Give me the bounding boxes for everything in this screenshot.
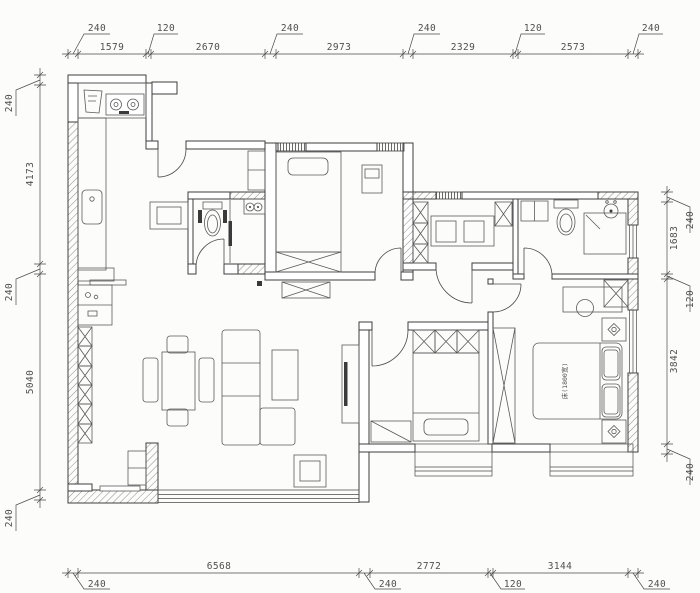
bedroom3-cabinet-symbol — [371, 421, 411, 442]
entry-door — [158, 149, 186, 177]
vanity-cabinet-symbol — [604, 280, 628, 307]
living-dining-area — [78, 285, 359, 487]
dim-top-2: 120 — [157, 23, 175, 34]
bedroom2-door — [375, 248, 401, 274]
dish-rack-symbol — [84, 90, 102, 113]
dim-top-4: 240 — [281, 23, 299, 34]
dim-top-0: 240 — [88, 23, 106, 34]
shower-2-symbol — [584, 213, 626, 254]
dim-bottom-5: 3144 — [548, 561, 572, 572]
dim-top-1: 1579 — [100, 42, 124, 53]
master-door — [493, 284, 521, 312]
dim-chain-bottom: 240 6568 240 2772 120 3144 240 — [62, 561, 670, 590]
shoe-cabinet-symbol — [248, 151, 265, 190]
study-area — [413, 202, 512, 263]
laundry-cabinet-symbol — [78, 285, 112, 325]
washstand-basin — [157, 207, 181, 224]
bathroom-2-area — [521, 200, 626, 254]
dim-left-0: 240 — [4, 94, 15, 112]
tv-symbol — [344, 362, 348, 406]
dim-left-2: 240 — [4, 283, 15, 301]
dim-right-1: 1683 — [669, 226, 680, 250]
bath2-east-window — [628, 225, 638, 258]
living-south-window — [158, 490, 359, 503]
study-door — [436, 267, 472, 303]
dim-top-6: 240 — [418, 23, 436, 34]
balcony-sill — [100, 486, 140, 491]
balcony-area — [100, 451, 146, 491]
master-bed-symbol: 床(1800宽) — [533, 343, 622, 419]
master-wardrobe-symbol — [493, 328, 515, 443]
study-xbox-symbol — [495, 202, 512, 226]
vanity-stool-symbol — [577, 300, 594, 317]
kitchen-area — [78, 83, 146, 285]
desk-symbol — [431, 216, 494, 246]
dim-left-1: 4173 — [25, 162, 36, 186]
dim-bottom-3: 2772 — [417, 561, 441, 572]
balcony-cabinet-symbol — [128, 451, 146, 485]
dim-right-2: 120 — [685, 290, 696, 308]
chair-1-symbol — [436, 221, 456, 242]
bedroom-2-area — [276, 152, 382, 272]
side-table-symbol — [294, 455, 326, 487]
nightstand-north-symbol — [602, 318, 626, 341]
toilet-1-symbol — [198, 202, 227, 236]
dim-right-3: 3842 — [669, 349, 680, 373]
washstand-symbol — [150, 202, 188, 229]
master-bed-label: 床(1800宽) — [560, 363, 569, 399]
wardrobe-2-symbol — [276, 252, 341, 272]
floor-plan-canvas: 240 1579 120 2670 240 2973 240 2329 120 … — [0, 0, 700, 593]
dim-top-3: 2670 — [196, 42, 220, 53]
bath1-door — [196, 239, 224, 267]
study-vent-window — [436, 192, 462, 199]
dim-chain-top: 240 1579 120 2670 240 2973 240 2329 120 … — [62, 23, 663, 59]
wardrobe-3-symbol — [413, 330, 479, 353]
bedroom2-vent-window-2 — [377, 143, 404, 151]
shower-screen-symbol — [229, 200, 233, 263]
bath2-door — [524, 248, 552, 276]
dim-bottom-0: 240 — [88, 579, 106, 590]
dim-top-10: 240 — [642, 23, 660, 34]
bed-2-symbol — [276, 152, 341, 252]
floor-plan-svg: 240 1579 120 2670 240 2973 240 2329 120 … — [0, 0, 700, 593]
bedroom2-vent-window-1 — [278, 143, 306, 151]
nightstand-south-symbol — [602, 420, 626, 443]
study-cabinet-column — [413, 202, 428, 263]
dim-right-0: 240 — [685, 211, 696, 229]
bathroom-1-area — [150, 199, 265, 263]
dim-bottom-2: 240 — [379, 579, 397, 590]
flue-box — [152, 82, 177, 94]
bed-3-symbol — [413, 353, 479, 441]
master-bay-window — [550, 444, 633, 476]
washbasin-2-symbol — [604, 201, 618, 218]
chair-2-symbol — [464, 221, 484, 242]
stove-symbol — [106, 94, 144, 115]
master-east-window — [628, 310, 638, 373]
tv-cabinet-symbol — [342, 345, 359, 423]
dim-top-8: 120 — [524, 23, 542, 34]
dim-right-4: 240 — [685, 463, 696, 481]
toilet-2-symbol — [554, 200, 578, 235]
master-bedroom-area: 床(1800宽) — [493, 280, 628, 443]
dim-left-3: 5040 — [25, 370, 36, 394]
exterior-walls — [68, 75, 638, 503]
hall-cabinet-symbol — [282, 282, 330, 298]
dim-bottom-6: 240 — [648, 579, 666, 590]
sofa-symbol — [222, 330, 295, 445]
dining-set-symbol — [143, 336, 214, 426]
coffee-table-symbol — [272, 350, 298, 400]
bedroom-3-area — [371, 330, 479, 442]
storage-shelf-column — [78, 327, 92, 443]
dim-top-5: 2973 — [327, 42, 351, 53]
bath2-cabinet-symbol — [521, 201, 548, 221]
bedroom3-door — [372, 330, 408, 366]
dim-chain-left: 240 4173 240 5040 240 — [4, 68, 46, 531]
nightstand-2-symbol — [362, 165, 382, 193]
dim-top-9: 2573 — [561, 42, 585, 53]
dim-bottom-1: 6568 — [207, 561, 231, 572]
dim-top-7: 2329 — [451, 42, 475, 53]
dim-chain-right: 240 1683 120 3842 240 — [661, 186, 696, 485]
dim-bottom-4: 120 — [504, 579, 522, 590]
bedroom3-bay-window — [415, 444, 492, 476]
dim-left-4: 240 — [4, 509, 15, 527]
switch-dot — [257, 281, 262, 286]
washbasin-1-symbol — [244, 199, 265, 214]
kitchen-sink-symbol — [82, 190, 102, 224]
